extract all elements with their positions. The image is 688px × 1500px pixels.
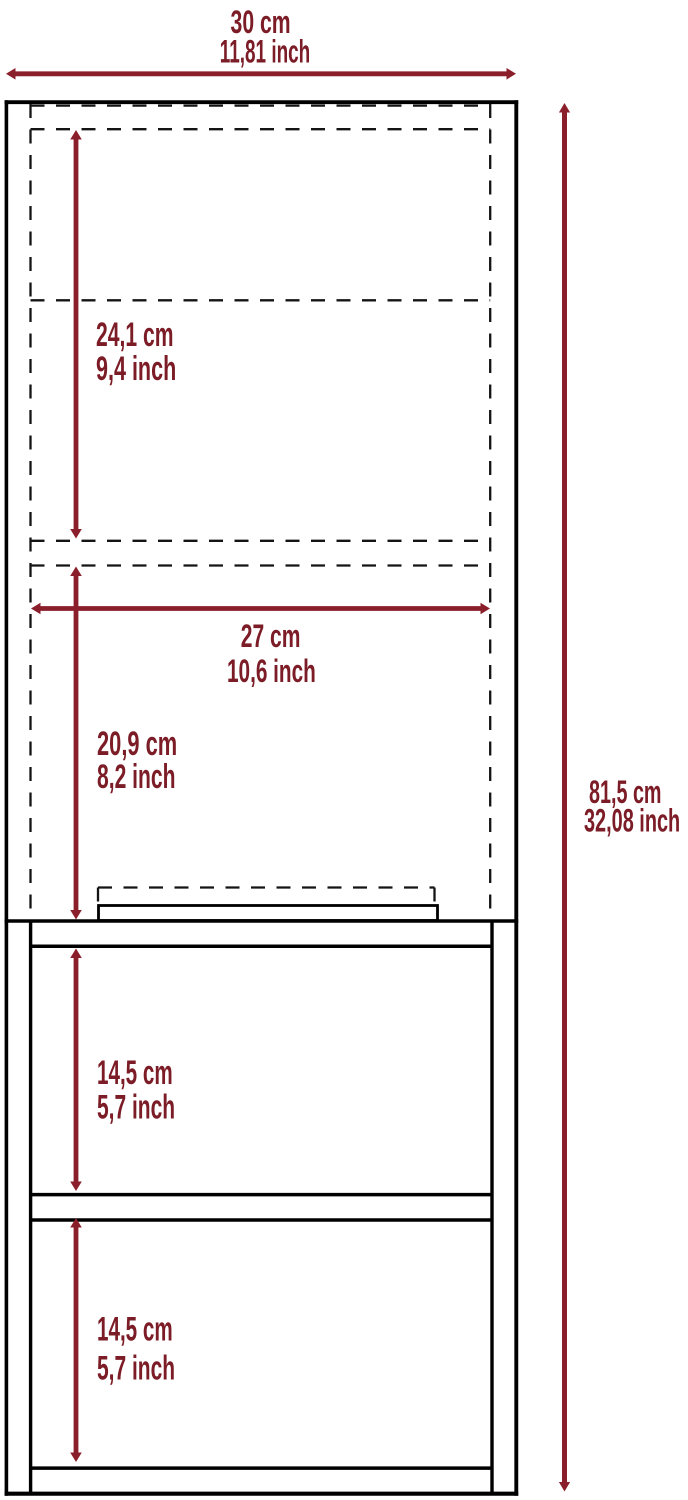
- svg-text:14,5 cm: 14,5 cm: [97, 1054, 173, 1091]
- svg-text:8,2 inch: 8,2 inch: [97, 757, 175, 795]
- svg-text:9,4 inch: 9,4 inch: [96, 350, 176, 388]
- svg-text:24,1 cm: 24,1 cm: [96, 315, 173, 353]
- svg-text:32,08 inch: 32,08 inch: [584, 803, 680, 839]
- svg-text:5,7 inch: 5,7 inch: [97, 1087, 175, 1126]
- svg-text:5,7 inch: 5,7 inch: [97, 1348, 175, 1387]
- svg-text:14,5 cm: 14,5 cm: [97, 1310, 173, 1347]
- svg-text:10,6 inch: 10,6 inch: [227, 652, 316, 689]
- svg-text:11,81 inch: 11,81 inch: [220, 33, 310, 70]
- svg-text:27 cm: 27 cm: [241, 617, 301, 654]
